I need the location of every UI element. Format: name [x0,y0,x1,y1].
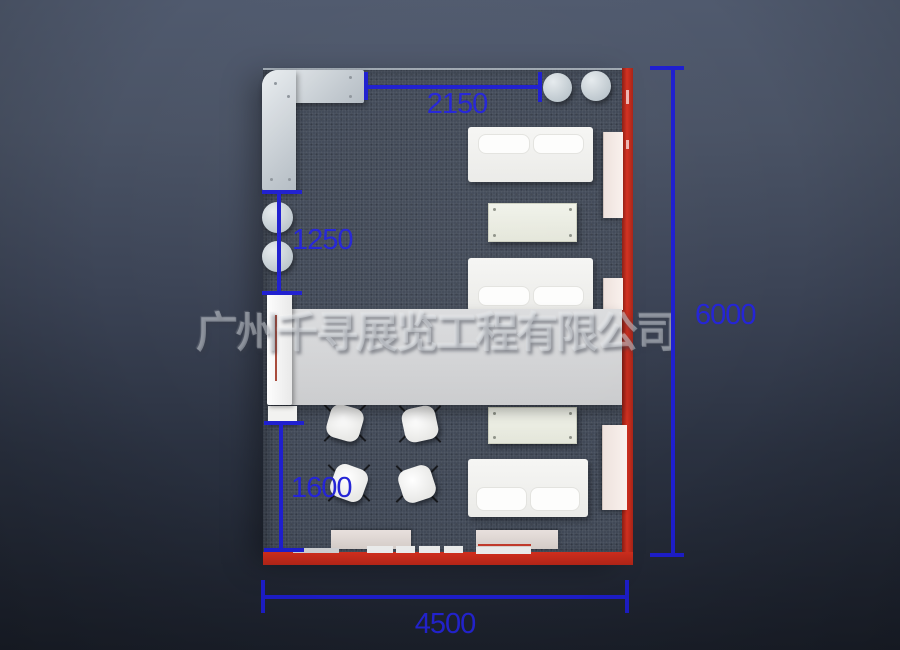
sofa-back-cushions [478,134,584,154]
dimension-line [262,595,629,599]
display-panel [603,132,623,218]
round-table [262,241,293,272]
sofa-top [468,127,593,182]
guest-chair [397,464,437,504]
coffee-table [488,407,577,444]
desk-screw-dot [270,178,273,181]
desk-screw-dot [287,95,290,98]
sofa-back-cushions [476,487,580,511]
guest-chair [325,403,365,443]
dimension-tick [650,553,684,557]
small-stool [268,406,297,425]
dimension-tick [625,580,629,613]
guest-chair [400,404,440,444]
desk-screw-dot [274,82,277,85]
skirting-strip [444,546,463,553]
round-table [581,71,611,101]
cabinet-trim [478,544,531,546]
display-panel [602,425,627,510]
wall-label-mark [626,140,629,149]
skirting-strip [419,546,440,553]
desk-screw-dot [349,95,352,98]
skirting-strip [396,546,415,553]
company-watermark: 广州千寻展览工程有限公司 [196,299,676,360]
skirting-strip [367,546,393,553]
skirting-strip [293,548,339,553]
booth-floor-plan-render: 广州千寻展览工程有限公司 2150 1250 1600 6000 4500 [0,0,900,650]
desk-screw-dot [349,76,352,79]
dimension-label: 4500 [385,610,505,639]
coffee-table [488,203,577,242]
guest-chair [329,463,369,503]
round-table [262,202,293,233]
dimension-tick [261,580,265,613]
skirting-strip [476,547,531,554]
wall-label-mark [626,90,629,104]
reception-desk-side-arm [262,70,296,192]
sofa-bottom [468,459,588,517]
dimension-label: 6000 [695,301,756,330]
round-table [543,73,572,102]
desk-screw-dot [288,178,291,181]
dimension-tick [650,66,684,70]
wall-bottom [263,552,633,565]
